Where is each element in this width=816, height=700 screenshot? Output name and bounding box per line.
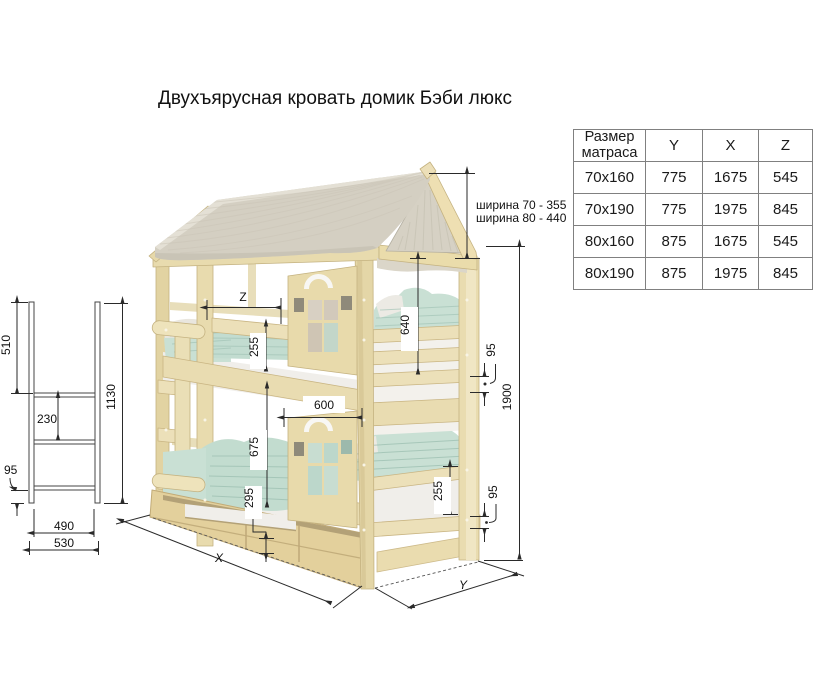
svg-text:255: 255 bbox=[431, 481, 445, 501]
svg-text:95: 95 bbox=[486, 485, 500, 499]
svg-text:1130: 1130 bbox=[104, 384, 118, 410]
svg-text:530: 530 bbox=[54, 536, 74, 550]
svg-text:95: 95 bbox=[4, 463, 18, 477]
svg-text:295: 295 bbox=[242, 488, 256, 508]
svg-text:255: 255 bbox=[247, 337, 261, 357]
svg-text:1900: 1900 bbox=[500, 383, 514, 410]
svg-text:490: 490 bbox=[54, 519, 74, 533]
svg-text:600: 600 bbox=[314, 398, 334, 412]
svg-text:ширина 70 - 355: ширина 70 - 355 bbox=[476, 198, 567, 212]
svg-text:Y: Y bbox=[459, 578, 468, 592]
svg-text:510: 510 bbox=[0, 335, 13, 355]
svg-text:230: 230 bbox=[37, 412, 57, 426]
svg-text:X: X bbox=[214, 551, 224, 565]
svg-text:675: 675 bbox=[247, 437, 261, 457]
svg-text:95: 95 bbox=[484, 343, 498, 357]
svg-text:ширина 80 - 440: ширина 80 - 440 bbox=[476, 211, 567, 225]
svg-text:640: 640 bbox=[398, 315, 412, 335]
svg-text:Z: Z bbox=[239, 290, 246, 304]
